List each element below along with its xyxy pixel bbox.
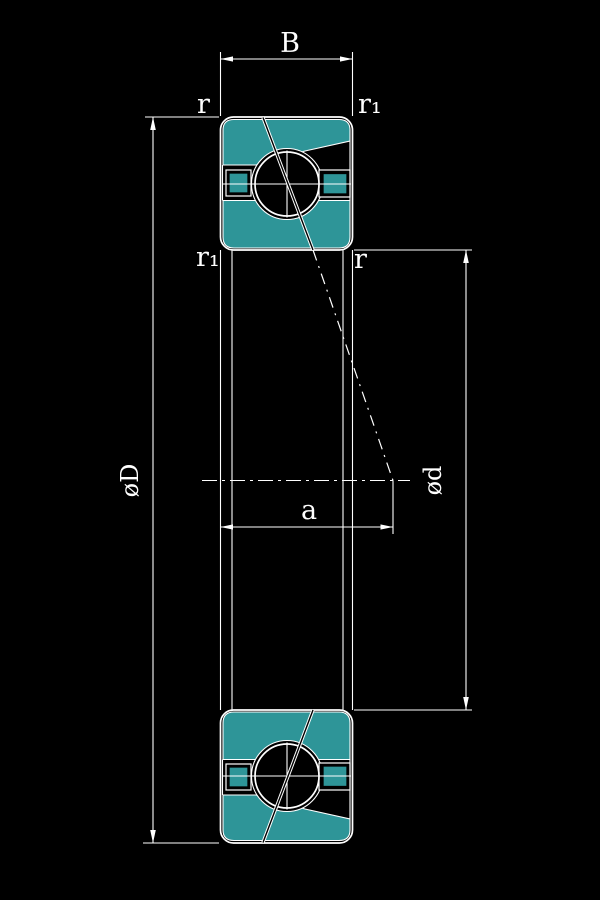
bottom-bearing-section xyxy=(221,710,353,843)
arrowhead xyxy=(381,524,394,529)
arrowhead xyxy=(463,697,469,710)
label-outer-diameter: øD xyxy=(116,464,144,498)
arrowhead xyxy=(221,56,234,61)
label-r-mid-right: r xyxy=(354,244,367,275)
label-bore-diameter: ød xyxy=(419,466,447,496)
dimension-B: B xyxy=(221,28,353,116)
cage-left-fill xyxy=(229,173,248,193)
bearing-drawing-svg: B r r₁ r₁ r øD ød a xyxy=(0,0,600,900)
label-r1-mid-left: r₁ xyxy=(196,242,220,273)
label-r-top-left: r xyxy=(197,89,210,120)
arrowhead xyxy=(150,830,156,843)
label-r1-top-right: r₁ xyxy=(358,89,382,120)
arrowhead xyxy=(340,56,353,61)
label-B: B xyxy=(280,28,300,59)
arrowhead xyxy=(150,117,156,130)
dimension-a: a xyxy=(221,481,394,535)
top-bearing-section xyxy=(221,117,353,250)
label-a: a xyxy=(301,495,317,526)
arrowhead xyxy=(221,524,234,529)
bearing-diagram: B r r₁ r₁ r øD ød a xyxy=(0,0,600,900)
arrowhead xyxy=(463,250,469,263)
